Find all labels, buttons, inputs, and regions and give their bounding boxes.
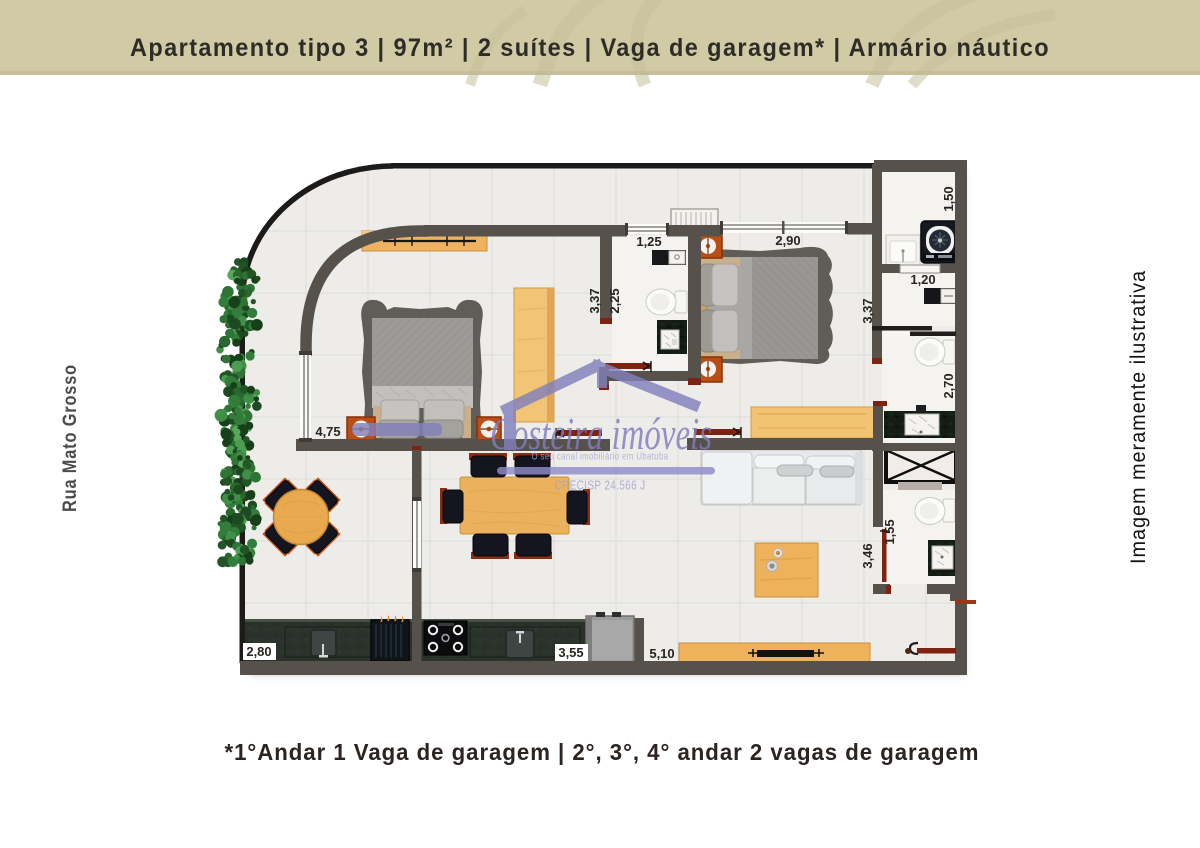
svg-text:1,25: 1,25 <box>636 234 661 249</box>
svg-text:Apartamento tipo 3 | 97m² | 2: Apartamento tipo 3 | 97m² | 2 suítes | V… <box>130 34 1050 62</box>
svg-text:Imagem meramente ilustrativa: Imagem meramente ilustrativa <box>1127 270 1150 564</box>
svg-text:3,37: 3,37 <box>587 288 602 313</box>
svg-text:3,46: 3,46 <box>860 543 875 568</box>
svg-text:4,75: 4,75 <box>315 424 340 439</box>
svg-text:3,37: 3,37 <box>860 298 875 323</box>
svg-text:O seu canal imobiliário em Uba: O seu canal imobiliário em Ubatuba <box>532 451 669 463</box>
svg-text:2,70: 2,70 <box>941 373 956 398</box>
svg-text:Rua Mato Grosso: Rua Mato Grosso <box>60 364 81 512</box>
svg-text:3,55: 3,55 <box>558 645 583 660</box>
svg-text:5,10: 5,10 <box>649 646 674 661</box>
svg-text:2,25: 2,25 <box>607 288 622 313</box>
svg-text:1,55: 1,55 <box>882 519 897 544</box>
svg-text:CRECISP 24.566 J: CRECISP 24.566 J <box>555 478 646 493</box>
svg-text:1,50: 1,50 <box>941 186 956 211</box>
svg-text:2,80: 2,80 <box>246 644 271 659</box>
svg-text:2,90: 2,90 <box>775 233 800 248</box>
svg-text:1,20: 1,20 <box>910 272 935 287</box>
svg-text:*1°Andar 1 Vaga de garagem | 2: *1°Andar 1 Vaga de garagem | 2°, 3°, 4° … <box>225 739 980 765</box>
